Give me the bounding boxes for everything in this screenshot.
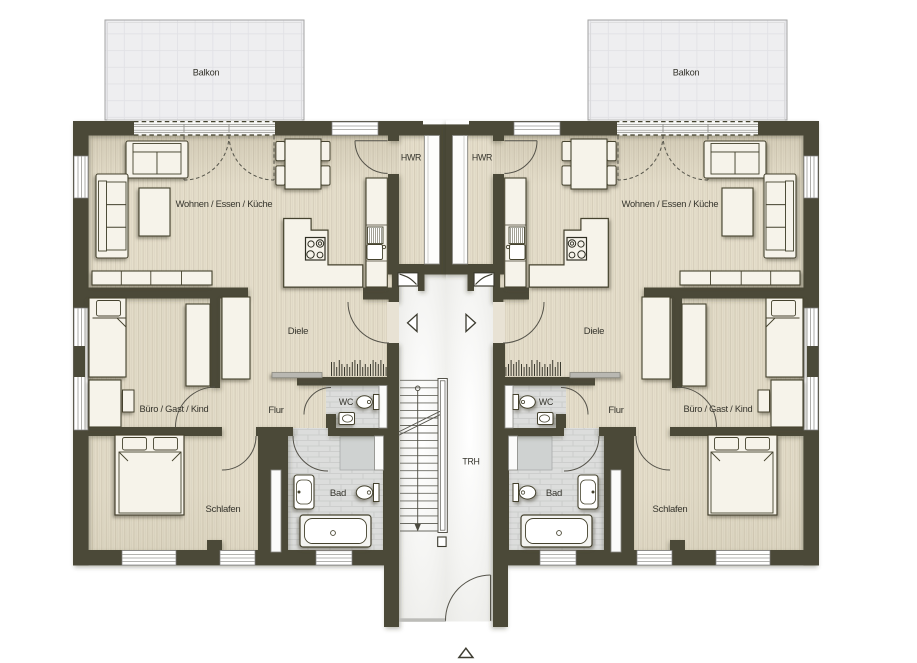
- svg-text:Flur: Flur: [268, 405, 283, 416]
- svg-text:Wohnen / Essen / Küche: Wohnen / Essen / Küche: [622, 199, 719, 209]
- svg-text:Diele: Diele: [288, 326, 308, 337]
- svg-text:Bad: Bad: [546, 488, 562, 499]
- svg-text:Büro / Gast / Kind: Büro / Gast / Kind: [684, 404, 753, 414]
- svg-text:Wohnen / Essen / Küche: Wohnen / Essen / Küche: [176, 199, 273, 209]
- svg-text:Balkon: Balkon: [193, 68, 220, 78]
- svg-text:HWR: HWR: [401, 153, 421, 163]
- svg-text:Flur: Flur: [608, 405, 623, 416]
- svg-text:Balkon: Balkon: [673, 68, 700, 78]
- svg-text:Diele: Diele: [584, 326, 604, 337]
- svg-text:TRH: TRH: [462, 457, 479, 467]
- svg-text:WC: WC: [539, 397, 554, 407]
- svg-text:Bad: Bad: [330, 488, 346, 499]
- svg-text:Schlafen: Schlafen: [206, 504, 241, 515]
- svg-text:Büro / Gast / Kind: Büro / Gast / Kind: [140, 404, 209, 414]
- svg-text:WC: WC: [339, 397, 354, 407]
- svg-text:HWR: HWR: [472, 153, 492, 163]
- svg-text:Schlafen: Schlafen: [653, 504, 688, 515]
